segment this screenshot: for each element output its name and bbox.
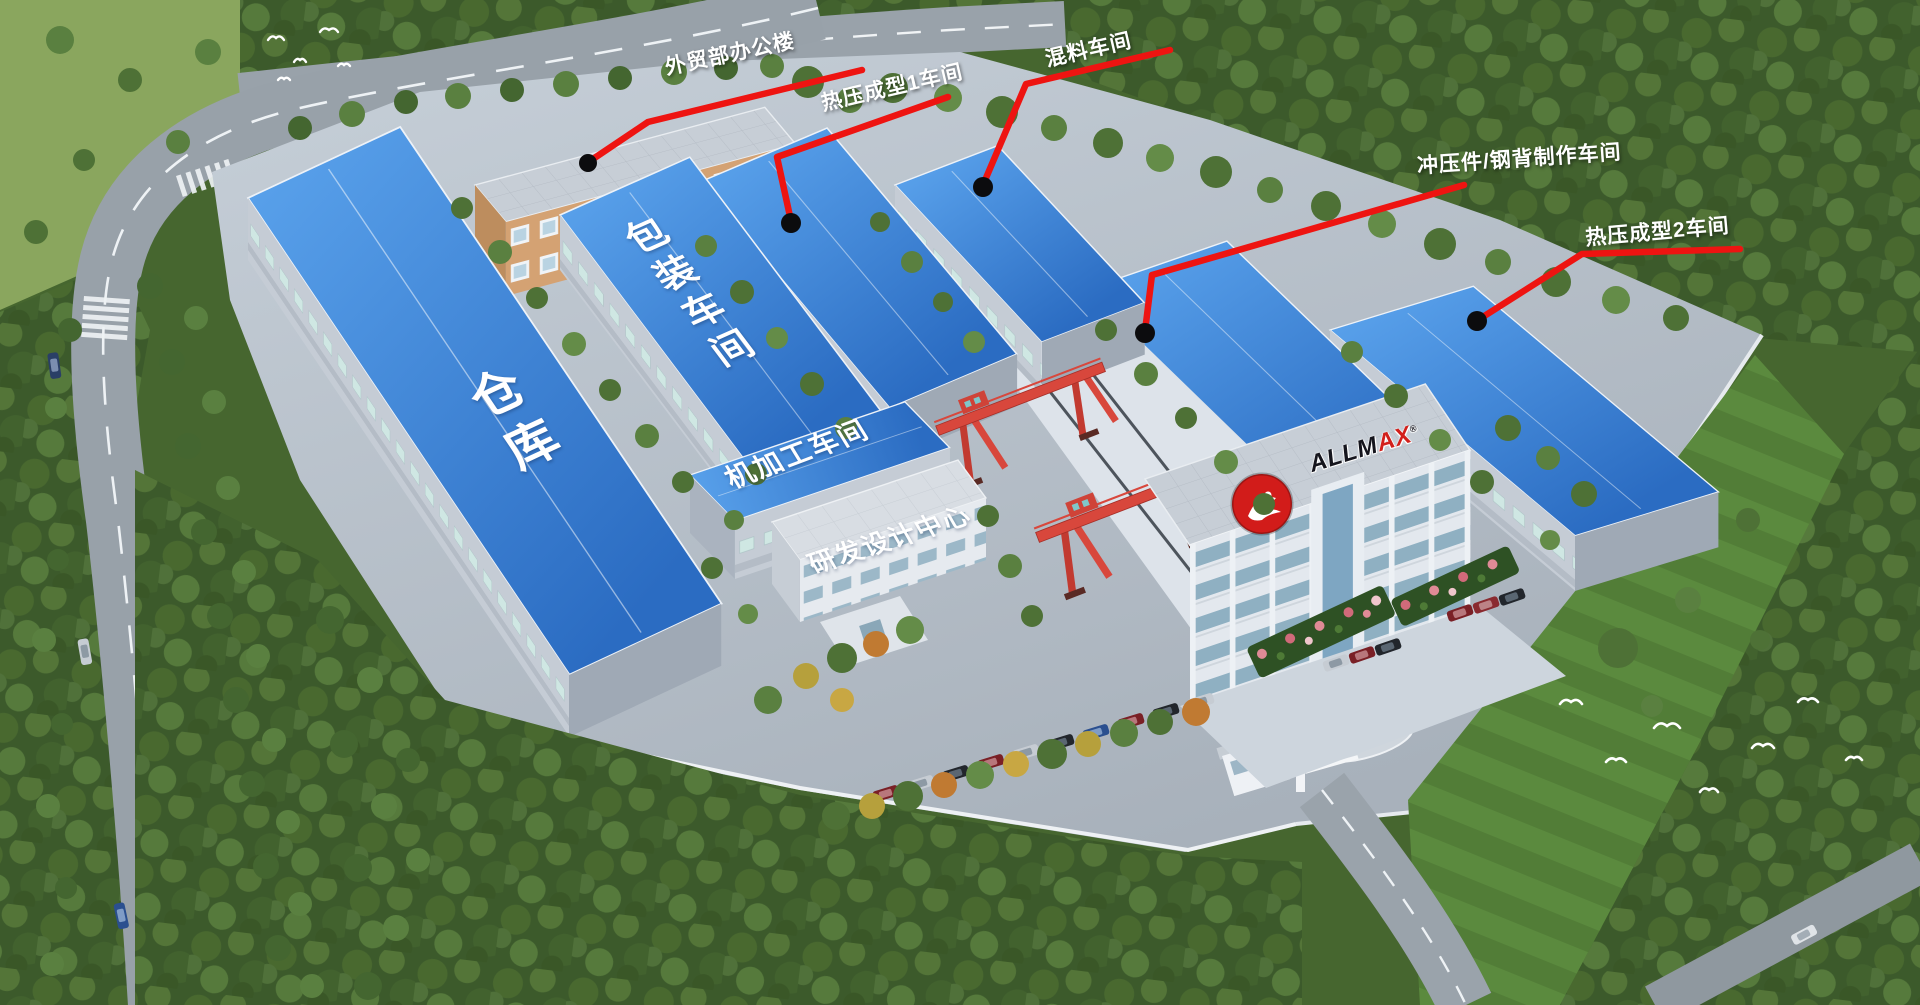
bird-icon: [278, 78, 290, 80]
bird-icon: [338, 64, 350, 66]
callout-dot: [579, 154, 597, 172]
callout-dot: [973, 177, 993, 197]
factory-aerial-scene: 外贸部办公楼 热压成型1车间 混料车间 冲压件/钢背制作车间 热压成型2车间 包…: [0, 0, 1920, 1005]
callout-dot: [1135, 323, 1155, 343]
callout-dot: [781, 213, 801, 233]
callout-dot: [1467, 311, 1487, 331]
scene-canvas: [0, 0, 1920, 1005]
